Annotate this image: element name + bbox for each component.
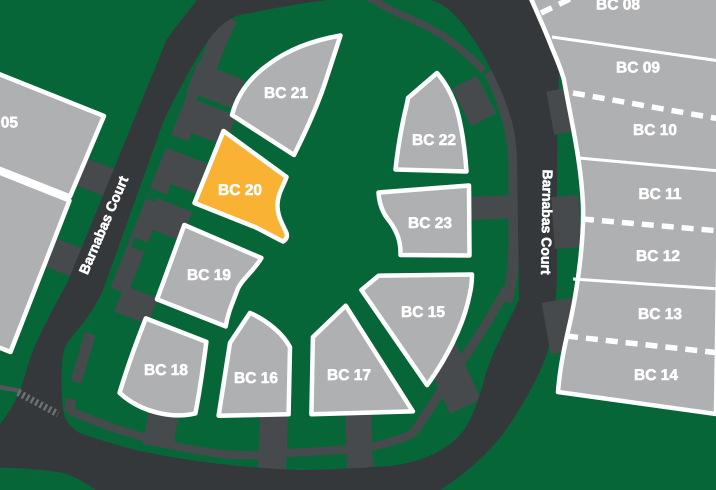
svg-text:BC 23: BC 23 bbox=[408, 215, 452, 232]
svg-text:BC 09: BC 09 bbox=[616, 60, 660, 77]
svg-text:BC 17: BC 17 bbox=[327, 367, 371, 384]
svg-text:BC 12: BC 12 bbox=[636, 248, 680, 265]
svg-text:BC 05: BC 05 bbox=[0, 115, 18, 132]
svg-text:BC 14: BC 14 bbox=[634, 367, 678, 384]
svg-text:BC 21: BC 21 bbox=[264, 85, 308, 102]
svg-text:BC 13: BC 13 bbox=[638, 306, 682, 323]
svg-text:BC 18: BC 18 bbox=[144, 362, 188, 379]
svg-text:BC 22: BC 22 bbox=[412, 132, 456, 149]
svg-text:Barnabas Court: Barnabas Court bbox=[538, 169, 556, 275]
svg-text:BC 16: BC 16 bbox=[234, 370, 278, 387]
svg-text:BC 15: BC 15 bbox=[401, 304, 445, 321]
svg-text:BC 19: BC 19 bbox=[187, 267, 231, 284]
svg-text:BC 11: BC 11 bbox=[638, 186, 681, 203]
svg-text:BC 08: BC 08 bbox=[596, 0, 640, 14]
svg-text:BC 10: BC 10 bbox=[633, 122, 677, 139]
svg-text:BC 20: BC 20 bbox=[218, 182, 262, 199]
